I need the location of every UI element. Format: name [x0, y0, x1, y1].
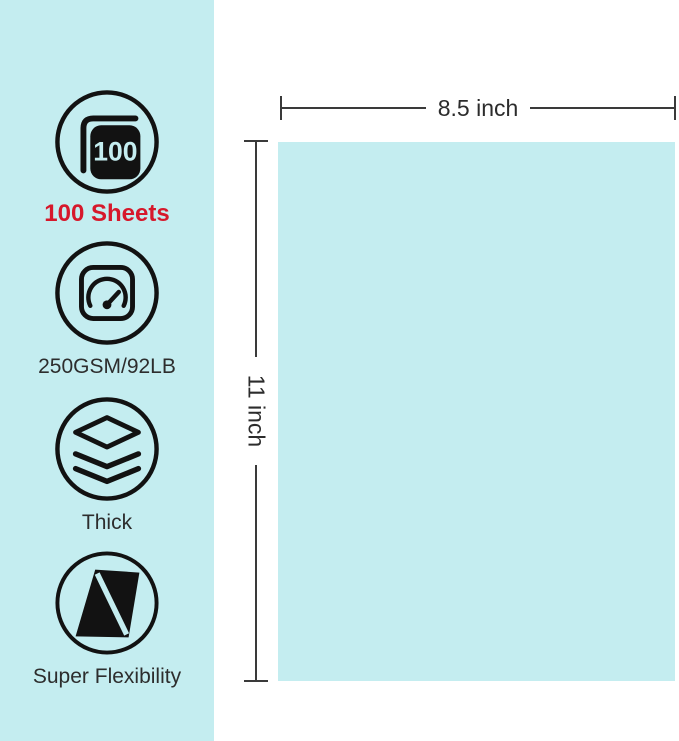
- dimension-tick-right: [674, 96, 676, 120]
- width-dimension-label: 8.5 inch: [426, 97, 531, 120]
- feature-paper-weight: 250GSM/92LB: [0, 239, 214, 378]
- paper-weight-label: 250GSM/92LB: [38, 355, 176, 378]
- thickness-label: Thick: [82, 511, 132, 534]
- dimension-line-segment: [255, 465, 257, 680]
- feature-sheet-count: 100 100 Sheets: [0, 88, 214, 227]
- flex-parallelogram-icon: [53, 549, 161, 657]
- height-dimension-label: 11 inch: [245, 375, 268, 447]
- feature-panel: 100 100 Sheets 250GSM/92LB: [0, 0, 214, 741]
- product-infographic: 100 100 Sheets 250GSM/92LB: [0, 0, 679, 741]
- dimension-line-segment: [255, 142, 257, 357]
- dimension-line-segment: [282, 107, 426, 109]
- dimension-line-segment: [530, 107, 674, 109]
- height-dimension: 11 inch: [244, 140, 268, 682]
- width-dimension: 8.5 inch: [280, 96, 676, 120]
- feature-flexibility: Super Flexibility: [0, 549, 214, 688]
- height-dimension-label-wrap: 11 inch: [244, 357, 268, 465]
- flexibility-label: Super Flexibility: [33, 665, 181, 688]
- dimension-tick-bottom: [244, 680, 268, 682]
- layers-icon: [53, 395, 161, 503]
- gauge-icon: [53, 239, 161, 347]
- feature-thickness: Thick: [0, 395, 214, 534]
- sheet-count-badge: 100: [93, 137, 137, 167]
- sheets-stack-icon: 100: [53, 88, 161, 196]
- sheet-count-label: 100 Sheets: [44, 201, 169, 227]
- paper-sheet: [278, 142, 675, 681]
